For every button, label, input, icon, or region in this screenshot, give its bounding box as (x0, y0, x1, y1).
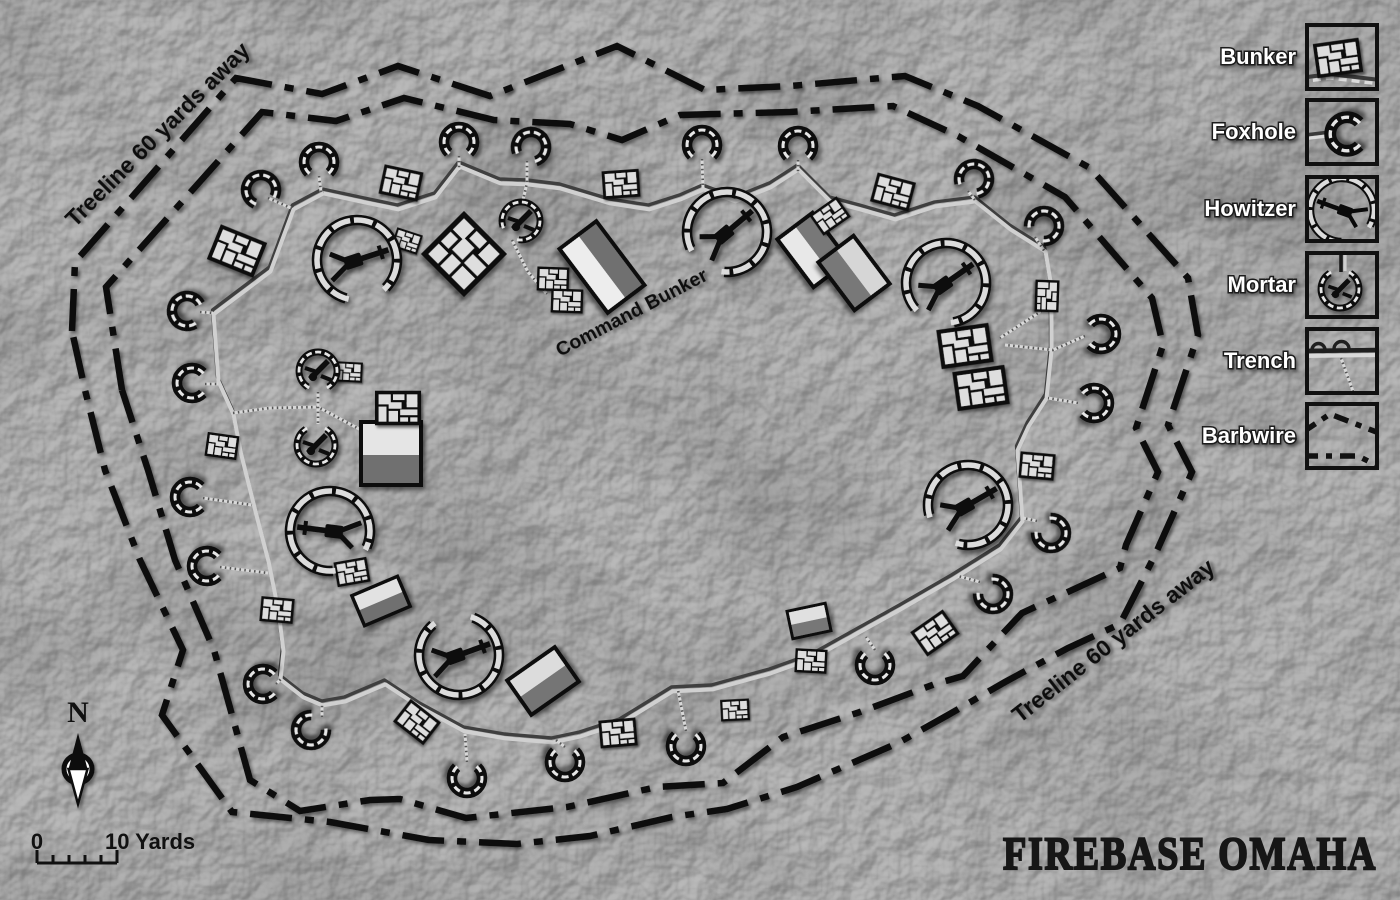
svg-text:Howitzer: Howitzer (1204, 196, 1296, 221)
svg-text:Mortar: Mortar (1228, 272, 1297, 297)
svg-text:N: N (67, 696, 89, 729)
svg-text:Bunker: Bunker (1220, 44, 1296, 69)
svg-text:Foxhole: Foxhole (1212, 119, 1296, 144)
svg-text:FIREBASE OMAHA: FIREBASE OMAHA (1003, 828, 1377, 880)
svg-text:10 Yards: 10 Yards (105, 829, 195, 854)
svg-text:Barbwire: Barbwire (1202, 423, 1296, 448)
svg-text:Trench: Trench (1224, 348, 1296, 373)
svg-text:0: 0 (31, 829, 43, 854)
